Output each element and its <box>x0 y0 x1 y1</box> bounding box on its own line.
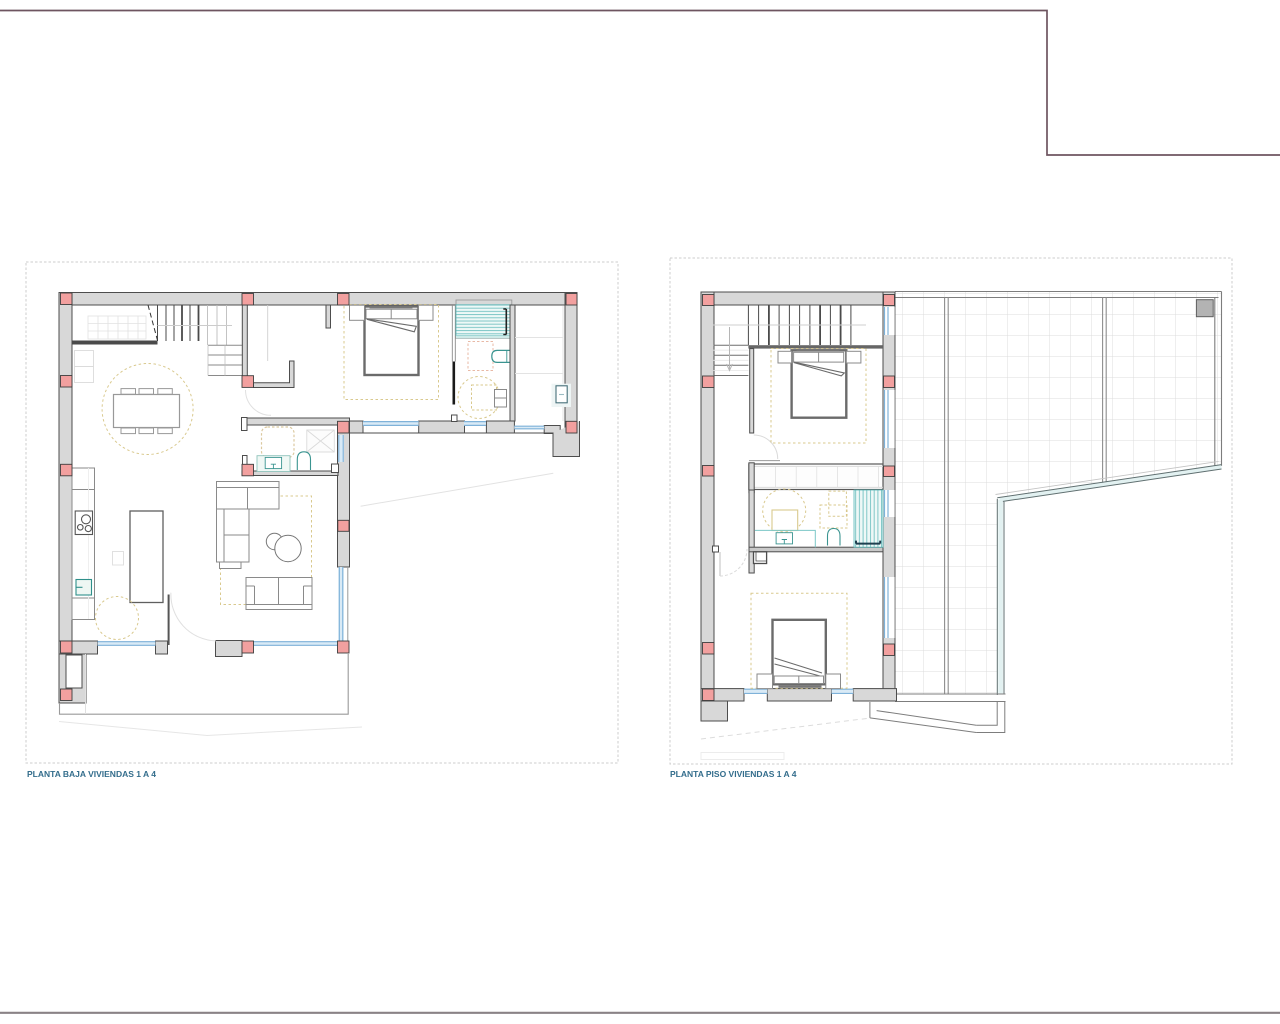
svg-text:PLANTA PISO VIVIENDAS 1 A 4: PLANTA PISO VIVIENDAS 1 A 4 <box>670 769 797 779</box>
svg-text:PLANTA BAJA VIVIENDAS 1 A 4: PLANTA BAJA VIVIENDAS 1 A 4 <box>27 769 156 779</box>
